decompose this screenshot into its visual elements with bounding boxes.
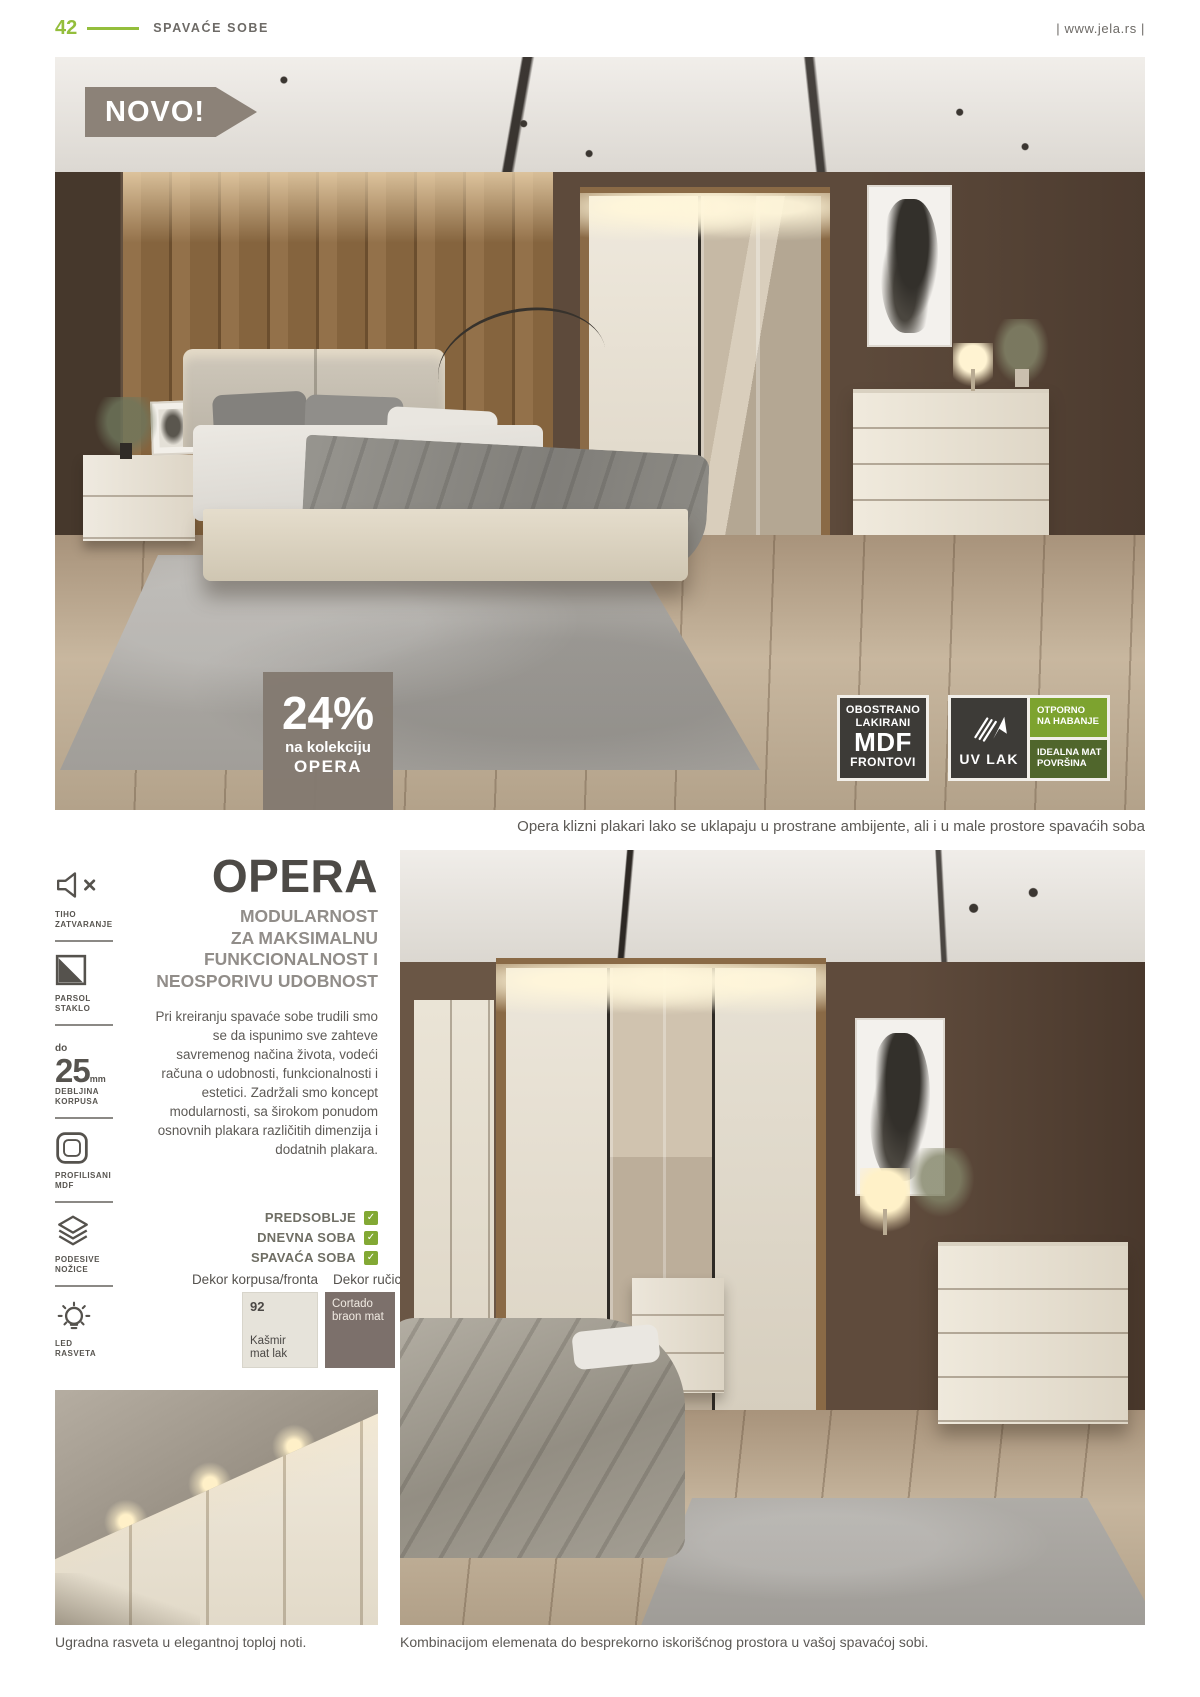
checklist-row: PREDSOBLJE ✓: [150, 1210, 378, 1225]
wear-top-line: OTPORNO: [1037, 705, 1107, 716]
checklist-row: SPAVAĆA SOBA ✓: [150, 1250, 378, 1265]
feature-divider: [55, 1024, 113, 1026]
bulb-icon: [55, 1299, 131, 1333]
feature-debljina-korpusa: do 25mm DEBLJINA KORPUSA: [55, 1038, 131, 1119]
hero-caption: Opera klizni plakari lako se uklapaju u …: [55, 818, 1145, 835]
hero-bed-base: [203, 509, 688, 581]
website-link[interactable]: | www.jela.rs |: [1056, 21, 1145, 36]
subtitle-line: FUNKCIONALNOST I: [150, 949, 378, 971]
checkmark-icon: ✓: [364, 1231, 378, 1245]
feature-divider: [55, 1117, 113, 1119]
discount-line1: na kolekciju: [263, 739, 393, 756]
page-header: 42 SPAVAĆE SOBE | www.jela.rs |: [55, 14, 1145, 42]
feature-led-rasveta: LED RASVETA: [55, 1299, 131, 1358]
checkmark-icon: ✓: [364, 1251, 378, 1265]
collection-description: Pri kreiranju spavaće sobe trudili smo s…: [150, 1007, 378, 1159]
mdf-badge-line: OBOSTRANO: [840, 704, 926, 717]
brush-arrow-icon: [969, 710, 1009, 749]
hero-plant: [991, 319, 1051, 387]
thickness-value: do 25mm: [55, 1038, 131, 1087]
mdf-quality-badge: OBOSTRANO LAKIRANI MDF FRONTOVI: [837, 695, 929, 781]
swatch-name: Kašmir mat lak: [250, 1335, 310, 1361]
hero-nightstand: [83, 455, 195, 541]
swatch-name-line: Kašmir: [250, 1335, 310, 1348]
photo-ceiling: [400, 850, 1145, 962]
layers-icon: [55, 1215, 131, 1249]
uv-lak-badge: UV LAK: [951, 698, 1027, 778]
hero-photo: NOVO! 24% na kolekciju OPERA OBOSTRANO L…: [55, 57, 1145, 810]
feature-label-line: RASVETA: [55, 1349, 131, 1359]
wear-bottom-line: IDEALNA MAT: [1037, 747, 1107, 758]
feature-parsol-staklo: PARSOL STAKLO: [55, 954, 131, 1026]
photo-bed: [400, 1318, 685, 1558]
attic-floor-shadow: [55, 1573, 200, 1625]
feature-label-line: DEBLJINA: [55, 1087, 131, 1097]
section-title: SPAVAĆE SOBE: [153, 21, 269, 35]
lighting-photo: [55, 1390, 378, 1625]
swatch-name: Cortado braon mat: [332, 1298, 388, 1324]
feature-label-line: MDF: [55, 1181, 131, 1191]
catalog-page: 42 SPAVAĆE SOBE | www.jela.rs |: [0, 0, 1200, 1697]
wear-badge-column: OTPORNO NA HABANJE IDEALNA MAT POVRŠINA: [1030, 698, 1107, 778]
hero-table-lamp: [953, 343, 993, 393]
uv-lak-badge-group: UV LAK OTPORNO NA HABANJE IDEALNA MAT PO…: [948, 695, 1110, 781]
wear-top-line: NA HABANJE: [1037, 716, 1107, 727]
collection-intro: OPERA MODULARNOST ZA MAKSIMALNU FUNKCION…: [150, 853, 378, 1159]
combination-photo: [400, 850, 1145, 1625]
feature-label-line: ZATVARANJE: [55, 920, 131, 930]
collection-subtitle: MODULARNOST ZA MAKSIMALNU FUNKCIONALNOST…: [150, 906, 378, 992]
wear-resistant-badge: OTPORNO NA HABANJE: [1030, 698, 1107, 737]
mdf-badge-line: FRONTOVI: [840, 755, 926, 769]
profiled-panel-icon: [55, 1131, 131, 1165]
feature-label: LED RASVETA: [55, 1339, 131, 1358]
thickness-number: 25: [55, 1052, 90, 1089]
feature-label: DEBLJINA KORPUSA: [55, 1087, 131, 1106]
mute-speaker-icon: [55, 870, 131, 904]
novo-badge-label: NOVO!: [105, 96, 205, 129]
collection-title: OPERA: [150, 853, 378, 899]
feature-divider: [55, 940, 113, 942]
mat-surface-badge: IDEALNA MAT POVRŠINA: [1030, 740, 1107, 779]
hero-wall-art: [867, 185, 952, 347]
feature-label-line: PARSOL: [55, 994, 131, 1004]
subtitle-line: NEOSPORIVU UDOBNOST: [150, 971, 378, 993]
feature-label-line: TIHO: [55, 910, 131, 920]
feature-divider: [55, 1201, 113, 1203]
checklist-label: PREDSOBLJE: [265, 1210, 356, 1225]
feature-label-line: KORPUSA: [55, 1097, 131, 1107]
glass-pane-icon: [55, 954, 131, 988]
feature-label-line: PODESIVE: [55, 1255, 131, 1265]
checklist-label: DNEVNA SOBA: [257, 1230, 356, 1245]
header-rule: [87, 27, 139, 30]
page-number: 42: [55, 17, 77, 40]
checkmark-icon: ✓: [364, 1211, 378, 1225]
feature-tiho-zatvaranje: TIHO ZATVARANJE: [55, 870, 131, 942]
wear-bottom-line: POVRŠINA: [1037, 758, 1107, 769]
feature-label-line: LED: [55, 1339, 131, 1349]
swatch-kasmir: 92 Kašmir mat lak: [242, 1292, 318, 1368]
swatch-name-line: braon mat: [332, 1311, 388, 1324]
room-checklist: PREDSOBLJE ✓ DNEVNA SOBA ✓ SPAVAĆA SOBA …: [150, 1210, 378, 1270]
checklist-label: SPAVAĆA SOBA: [251, 1250, 356, 1265]
wardrobe-mirror-door: [701, 196, 821, 573]
photo-table-lamp: [860, 1168, 910, 1242]
decor-front-header: Dekor korpusa/fronta: [55, 1272, 318, 1287]
header-left: 42 SPAVAĆE SOBE: [55, 17, 269, 40]
wardrobe-door: [715, 968, 816, 1418]
subtitle-line: MODULARNOST: [150, 906, 378, 928]
feature-label: PARSOL STAKLO: [55, 994, 131, 1013]
caption-lighting: Ugradna rasveta u elegantnoj toploj noti…: [55, 1634, 306, 1650]
swatch-name-line: mat lak: [250, 1348, 310, 1361]
thickness-unit: mm: [90, 1074, 106, 1084]
hero-dresser: [853, 389, 1049, 541]
uv-lak-label: UV LAK: [959, 751, 1018, 767]
feature-label-line: PROFILISANI: [55, 1171, 131, 1181]
photo-plant: [905, 1148, 977, 1220]
feature-profilisani-mdf: PROFILISANI MDF: [55, 1131, 131, 1203]
mdf-badge-line: MDF: [840, 729, 926, 755]
checklist-row: DNEVNA SOBA ✓: [150, 1230, 378, 1245]
subtitle-line: ZA MAKSIMALNU: [150, 928, 378, 950]
discount-percent: 24%: [263, 690, 393, 736]
discount-badge: 24% na kolekciju OPERA: [263, 672, 393, 810]
feature-label: TIHO ZATVARANJE: [55, 910, 131, 929]
caption-combination: Kombinacijom elemenata do besprekorno is…: [400, 1634, 928, 1650]
hero-nightstand-plant: [93, 397, 157, 459]
feature-label-line: STAKLO: [55, 1004, 131, 1014]
photo-dresser: [938, 1242, 1128, 1424]
swatch-cortado: Cortado braon mat: [325, 1292, 395, 1368]
discount-line2: OPERA: [263, 757, 393, 777]
feature-label: PROFILISANI MDF: [55, 1171, 131, 1190]
swatch-code: 92: [250, 1299, 310, 1314]
swatch-name-line: Cortado: [332, 1298, 388, 1311]
photo-rug: [640, 1498, 1145, 1625]
